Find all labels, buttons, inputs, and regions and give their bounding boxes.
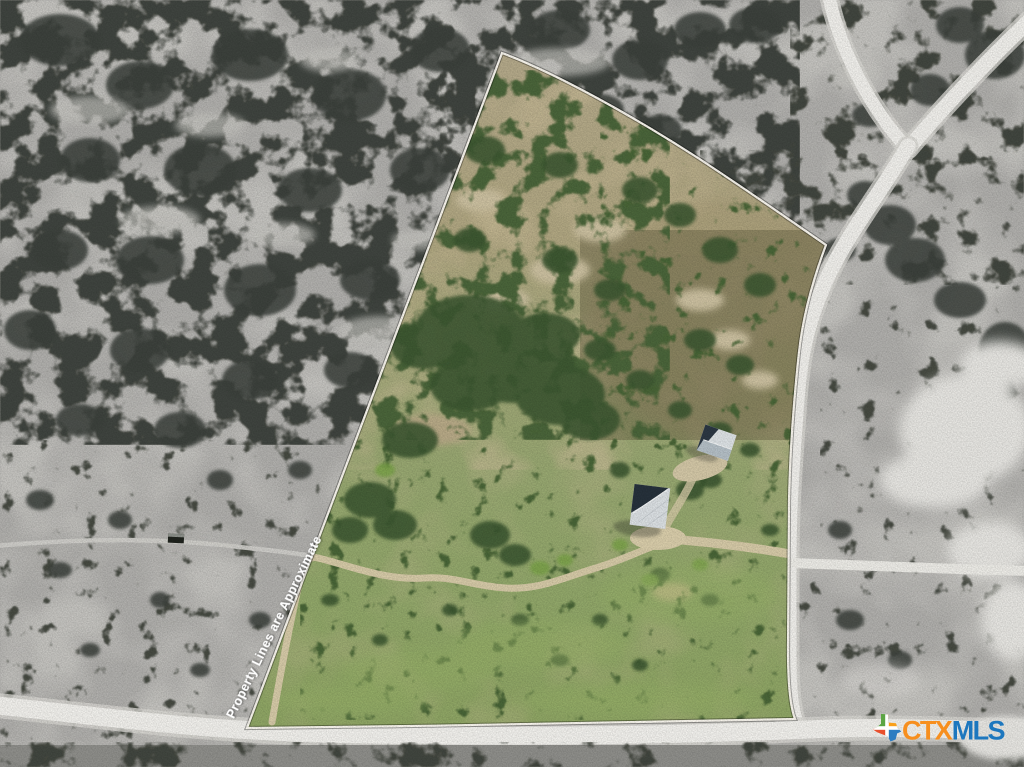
aerial-photo: Property Lines are Approximate CTXMLS [0,0,1024,767]
logo-wordmark: CTXMLS [902,716,1004,746]
aerial-image: Property Lines are Approximate CTXMLS [0,0,1024,767]
logo-ctx-text: CTX [902,716,953,746]
photo-grain [0,0,1024,767]
logo-mls-text: MLS [952,716,1005,746]
